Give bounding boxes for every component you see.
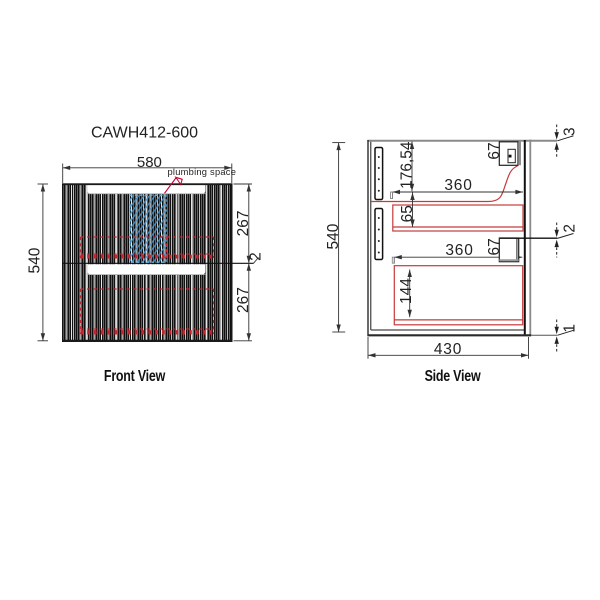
svg-text:267: 267 [235, 287, 252, 313]
svg-text:540: 540 [27, 247, 44, 273]
svg-text:Side View: Side View [425, 368, 482, 386]
svg-text:430: 430 [434, 341, 462, 358]
svg-text:144: 144 [398, 278, 415, 304]
svg-text:Front View: Front View [104, 368, 166, 386]
svg-text:1: 1 [562, 324, 579, 333]
svg-text:580: 580 [137, 154, 162, 171]
svg-text:176,54: 176,54 [398, 141, 415, 189]
svg-text:2: 2 [562, 224, 579, 233]
svg-text:3: 3 [562, 127, 579, 136]
svg-text:65: 65 [399, 205, 416, 222]
svg-text:plumbing space: plumbing space [168, 167, 237, 177]
svg-text:360: 360 [444, 177, 472, 194]
svg-text:67: 67 [486, 238, 503, 255]
svg-text:360: 360 [445, 242, 473, 259]
svg-text:CAWH412-600: CAWH412-600 [91, 125, 198, 142]
svg-text:540: 540 [325, 223, 342, 249]
svg-text:267: 267 [235, 210, 252, 236]
svg-text:2: 2 [248, 252, 265, 261]
svg-text:67: 67 [486, 142, 503, 159]
